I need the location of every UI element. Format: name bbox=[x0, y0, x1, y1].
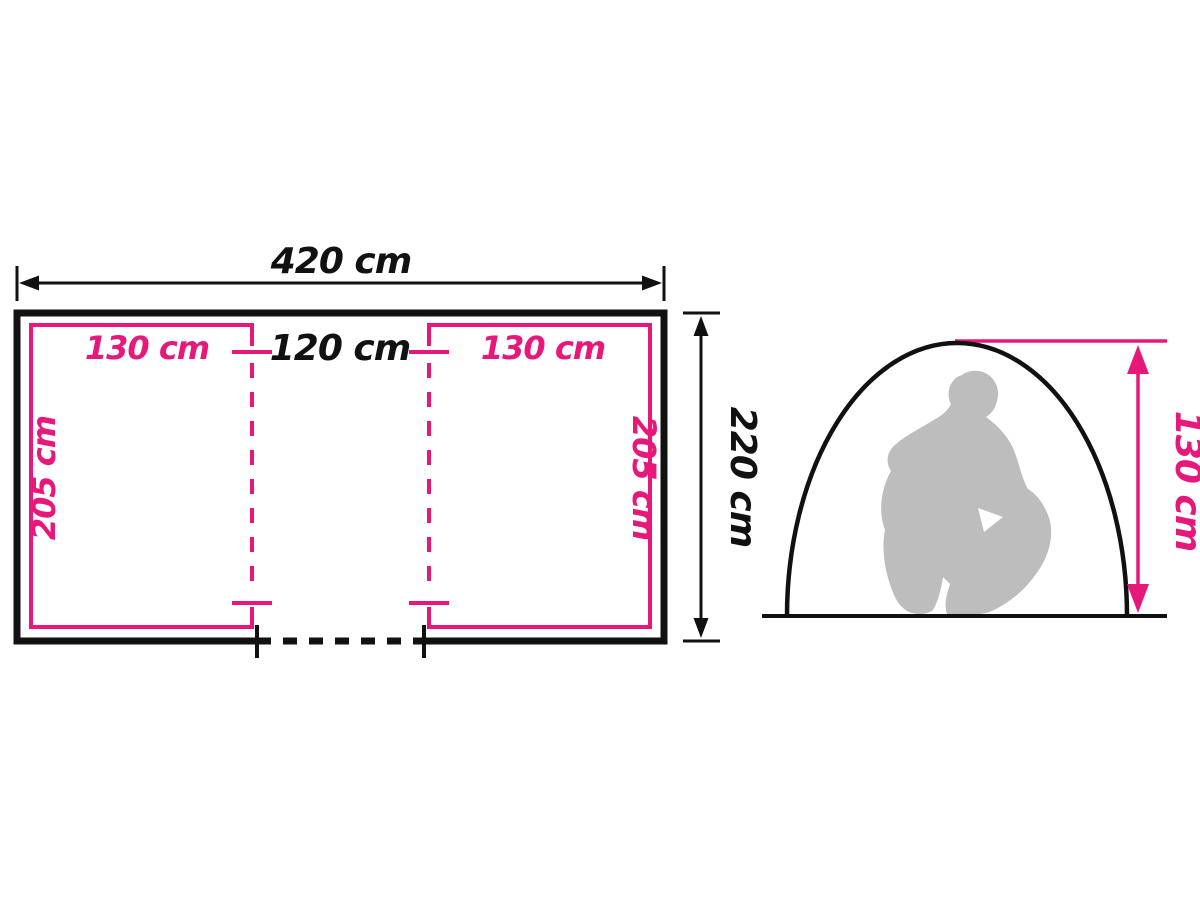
width-arrowhead-left-icon bbox=[19, 276, 39, 291]
depth-dimension: 220 cm bbox=[683, 313, 763, 641]
right-cabin-outline bbox=[429, 325, 650, 627]
right-cabin: 130 cm 205 cm bbox=[409, 325, 663, 627]
depth-arrowhead-top-icon bbox=[694, 316, 709, 336]
height-arrowhead-top-icon bbox=[1127, 345, 1149, 374]
depth-arrowhead-bottom-icon bbox=[694, 618, 709, 638]
overall-width-label: 420 cm bbox=[270, 241, 412, 282]
right-cabin-depth-label: 205 cm bbox=[625, 416, 663, 540]
interior-height-label: 130 cm bbox=[1167, 411, 1200, 552]
person-silhouette bbox=[881, 371, 1051, 614]
overall-depth-label: 220 cm bbox=[722, 407, 763, 548]
height-arrowhead-bottom-icon bbox=[1127, 584, 1149, 613]
floor-plan: 420 cm 130 cm 205 cm 130 bbox=[17, 241, 763, 658]
left-cabin-width-label: 130 cm bbox=[85, 329, 209, 367]
left-cabin: 130 cm 205 cm bbox=[25, 325, 272, 627]
width-arrowhead-right-icon bbox=[642, 276, 662, 291]
left-cabin-depth-label: 205 cm bbox=[25, 416, 63, 540]
width-dimension: 420 cm bbox=[17, 241, 664, 301]
right-cabin-width-label: 130 cm bbox=[481, 329, 605, 367]
side-view: 130 cm bbox=[762, 341, 1200, 616]
tent-dimensions-diagram: 420 cm 130 cm 205 cm 130 bbox=[0, 0, 1200, 900]
height-dimension: 130 cm bbox=[1127, 345, 1200, 613]
center-section-width-label: 120 cm bbox=[270, 328, 411, 369]
diagram-canvas: 420 cm 130 cm 205 cm 130 bbox=[0, 0, 1200, 900]
left-cabin-outline bbox=[31, 325, 252, 627]
